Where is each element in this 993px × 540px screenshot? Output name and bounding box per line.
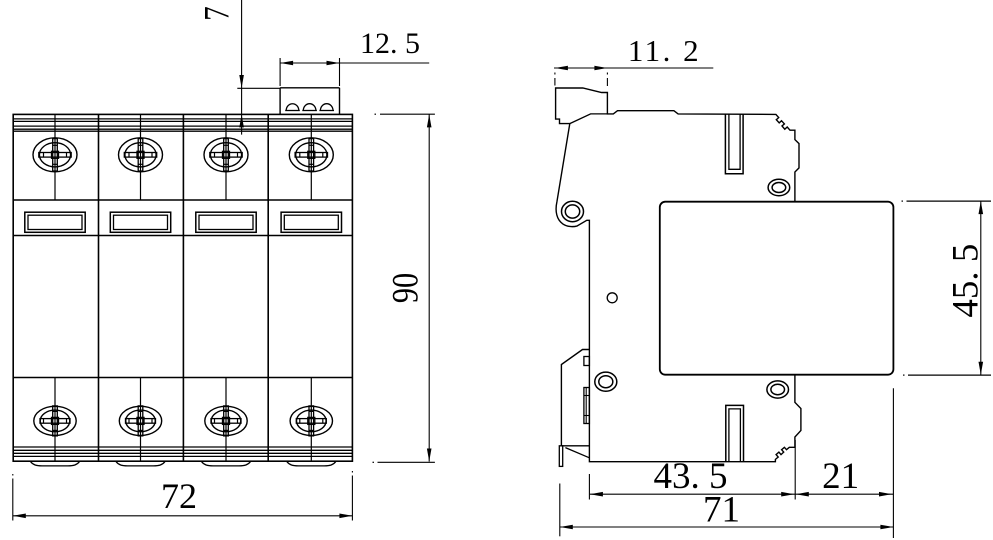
svg-text:72: 72 <box>161 476 197 516</box>
svg-text:45. 5: 45. 5 <box>946 244 987 318</box>
svg-text:90: 90 <box>386 273 426 303</box>
svg-text:12. 5: 12. 5 <box>360 27 420 60</box>
svg-text:71: 71 <box>703 490 740 531</box>
svg-text:7: 7 <box>198 6 238 20</box>
svg-text:21: 21 <box>822 456 859 497</box>
svg-text:11. 2: 11. 2 <box>628 33 701 68</box>
